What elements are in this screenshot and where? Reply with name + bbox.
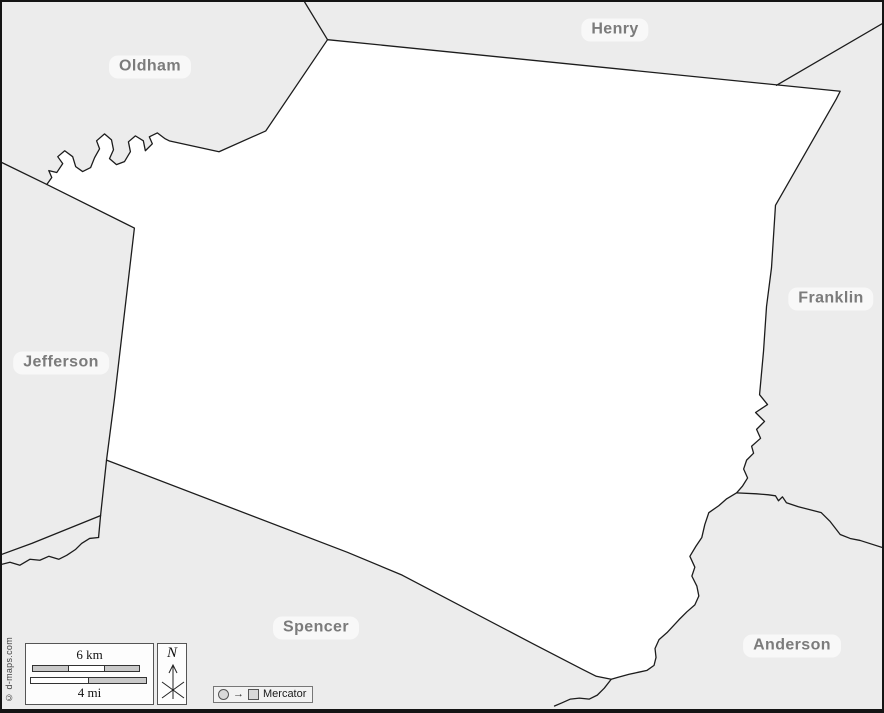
scale-bar-mi <box>30 677 147 684</box>
region-label-spencer: Spencer <box>273 617 359 640</box>
southwest-creek-boundary <box>2 537 99 565</box>
henry-franklin-boundary <box>776 24 882 85</box>
scale-km-segment <box>33 666 68 671</box>
spencer-anderson-boundary <box>554 679 611 706</box>
region-label-jefferson: Jefferson <box>13 352 109 375</box>
scale-km-segment <box>68 666 103 671</box>
copyright-text: © d-maps.com <box>4 637 14 703</box>
compass: N <box>157 643 187 705</box>
region-label-oldham: Oldham <box>109 56 191 79</box>
jefferson-southwest-boundary <box>2 516 101 555</box>
central-county-shape <box>47 40 840 680</box>
jefferson-spencer-boundary <box>99 460 107 537</box>
scale-bar: 6 km 4 mi <box>25 643 154 705</box>
franklin-anderson-boundary <box>737 493 882 548</box>
region-label-franklin: Franklin <box>788 288 873 311</box>
region-label-anderson: Anderson <box>743 635 841 658</box>
projection-arrow-icon: → <box>233 689 244 700</box>
county-boundaries-svg <box>2 2 882 709</box>
scale-km-segment <box>104 666 139 671</box>
scale-km-label: 6 km <box>26 647 153 663</box>
region-label-henry: Henry <box>581 19 648 42</box>
projection-circle-icon <box>218 689 229 700</box>
jefferson-oldham-boundary <box>2 163 47 185</box>
map-canvas: Oldham Henry Franklin Jefferson Spencer … <box>0 0 884 713</box>
scale-mi-label: 4 mi <box>26 685 153 701</box>
projection-name: Mercator <box>263 689 306 700</box>
compass-arrow-icon <box>158 644 186 704</box>
oldham-henry-boundary <box>305 2 328 40</box>
projection-legend: → Mercator <box>213 686 313 703</box>
scale-mi-segment <box>31 678 88 683</box>
projection-square-icon <box>248 689 259 700</box>
scale-bar-km <box>32 665 140 672</box>
scale-mi-segment <box>88 678 146 683</box>
